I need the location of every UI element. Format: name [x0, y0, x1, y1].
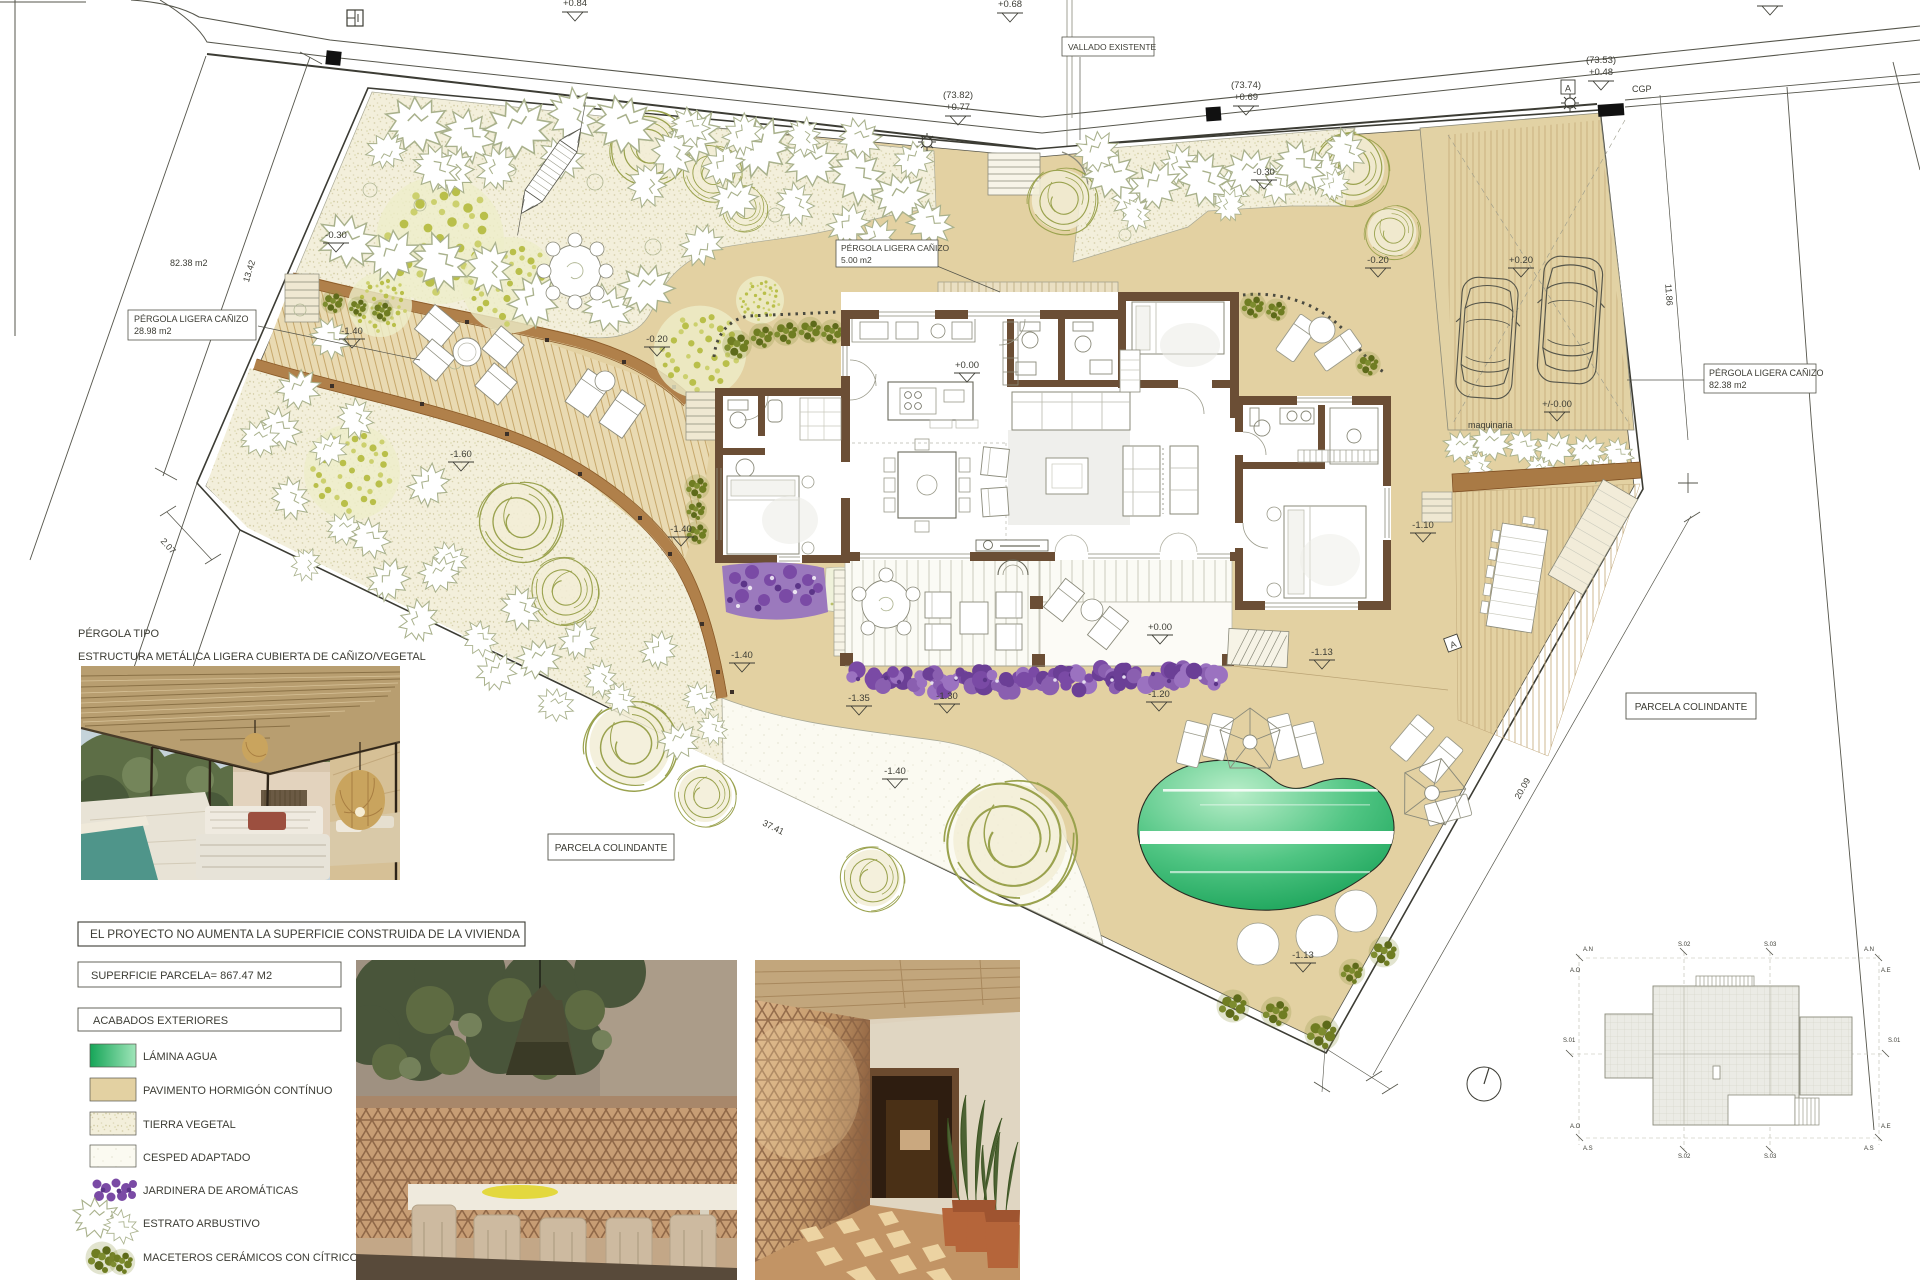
svg-text:+0.77: +0.77 — [946, 102, 970, 113]
svg-text:A.N: A.N — [1583, 947, 1593, 953]
svg-text:-0.30: -0.30 — [1253, 167, 1275, 178]
svg-text:A.O: A.O — [1570, 1124, 1581, 1130]
svg-text:82.38 m2: 82.38 m2 — [1709, 380, 1747, 390]
svg-text:-1.20: -1.20 — [1148, 689, 1170, 700]
svg-text:+0.84: +0.84 — [563, 0, 587, 9]
svg-text:+/-0.00: +/-0.00 — [1542, 399, 1572, 410]
svg-text:A.S: A.S — [1864, 1146, 1874, 1152]
svg-text:PARCELA COLINDANTE: PARCELA COLINDANTE — [1635, 702, 1748, 713]
svg-text:(73.82): (73.82) — [943, 90, 973, 101]
svg-text:82.38 m2: 82.38 m2 — [170, 258, 208, 268]
svg-text:-0.30: -0.30 — [325, 230, 347, 241]
svg-text:5.00 m2: 5.00 m2 — [841, 255, 872, 265]
svg-text:PÉRGOLA LIGERA CAÑIZO: PÉRGOLA LIGERA CAÑIZO — [1709, 368, 1824, 378]
svg-text:-1.13: -1.13 — [1292, 950, 1314, 961]
svg-text:LÁMINA AGUA: LÁMINA AGUA — [143, 1050, 218, 1063]
svg-text:(73.53): (73.53) — [1586, 55, 1616, 66]
svg-text:ESTRATO ARBUSTIVO: ESTRATO ARBUSTIVO — [143, 1218, 260, 1230]
svg-text:+0.20: +0.20 — [1509, 255, 1533, 266]
svg-text:PÉRGOLA LIGERA CAÑIZO: PÉRGOLA LIGERA CAÑIZO — [134, 314, 249, 324]
svg-text:+0.69: +0.69 — [1234, 92, 1258, 103]
svg-text:ESTRUCTURA METÁLICA LIGERA CUB: ESTRUCTURA METÁLICA LIGERA CUBIERTA DE C… — [78, 650, 426, 663]
svg-text:CESPED ADAPTADO: CESPED ADAPTADO — [143, 1152, 251, 1164]
svg-text:(73.74): (73.74) — [1231, 80, 1261, 91]
svg-text:+0.00: +0.00 — [955, 360, 979, 371]
svg-text:A.E: A.E — [1881, 968, 1891, 974]
svg-text:28.98 m2: 28.98 m2 — [134, 326, 172, 336]
svg-text:A: A — [1565, 84, 1571, 94]
svg-text:A.N: A.N — [1864, 947, 1874, 953]
svg-text:-0.20: -0.20 — [646, 334, 668, 345]
svg-text:S.01: S.01 — [1563, 1038, 1576, 1044]
svg-text:A.O: A.O — [1570, 968, 1581, 974]
svg-text:maquinaria: maquinaria — [1468, 420, 1513, 430]
svg-text:-1.10: -1.10 — [1412, 520, 1434, 531]
svg-text:-1.13: -1.13 — [1311, 647, 1333, 658]
svg-text:-1.35: -1.35 — [848, 693, 870, 704]
svg-text:S.02: S.02 — [1678, 1154, 1691, 1160]
svg-text:SUPERFICIE PARCELA= 867.47 M2: SUPERFICIE PARCELA= 867.47 M2 — [91, 970, 272, 982]
svg-text:JARDINERA DE AROMÁTICAS: JARDINERA DE AROMÁTICAS — [143, 1184, 298, 1197]
svg-text:EL PROYECTO NO AUMENTA LA SUPE: EL PROYECTO NO AUMENTA LA SUPERFICIE CON… — [90, 927, 520, 941]
svg-text:+0.48: +0.48 — [1589, 67, 1613, 78]
svg-text:A.E: A.E — [1881, 1124, 1891, 1130]
svg-text:11.86: 11.86 — [1663, 284, 1675, 307]
svg-text:S.03: S.03 — [1764, 1154, 1777, 1160]
svg-text:-0.20: -0.20 — [1367, 255, 1389, 266]
svg-text:-1.40: -1.40 — [341, 326, 363, 337]
svg-text:-1.30: -1.30 — [936, 691, 958, 702]
svg-text:ACABADOS EXTERIORES: ACABADOS EXTERIORES — [93, 1015, 228, 1027]
svg-text:-1.40: -1.40 — [670, 524, 692, 535]
svg-text:+0.00: +0.00 — [1148, 622, 1172, 633]
svg-text:S.01: S.01 — [1888, 1038, 1901, 1044]
svg-text:CGP: CGP — [1632, 84, 1652, 94]
svg-text:MACETEROS CERÁMICOS CON CÍTRIC: MACETEROS CERÁMICOS CON CÍTRICOS — [143, 1251, 365, 1264]
svg-text:PÉRGOLA TIPO: PÉRGOLA TIPO — [78, 627, 160, 640]
svg-text:S.02: S.02 — [1678, 942, 1691, 948]
svg-text:VALLADO EXISTENTE: VALLADO EXISTENTE — [1068, 42, 1157, 52]
svg-text:PARCELA COLINDANTE: PARCELA COLINDANTE — [555, 843, 668, 854]
svg-text:S.03: S.03 — [1764, 942, 1777, 948]
svg-text:+0.68: +0.68 — [998, 0, 1022, 10]
svg-text:-1.40: -1.40 — [884, 766, 906, 777]
svg-text:-1.60: -1.60 — [450, 449, 472, 460]
svg-text:A.S: A.S — [1583, 1146, 1593, 1152]
svg-text:PÉRGOLA LIGERA CAÑIZO: PÉRGOLA LIGERA CAÑIZO — [841, 243, 950, 253]
svg-text:PAVIMENTO HORMIGÓN CONTÍNUO: PAVIMENTO HORMIGÓN CONTÍNUO — [143, 1084, 333, 1097]
svg-text:-1.40: -1.40 — [731, 650, 753, 661]
svg-text:TIERRA VEGETAL: TIERRA VEGETAL — [143, 1119, 236, 1131]
